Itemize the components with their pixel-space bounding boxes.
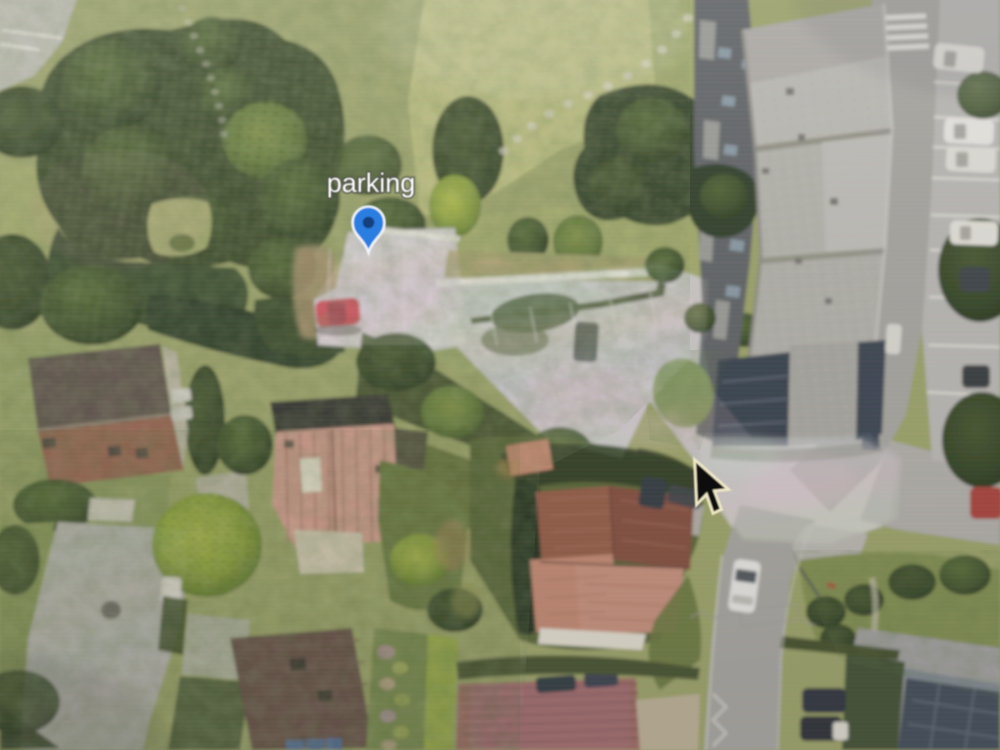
svg-text:parking: parking bbox=[327, 168, 416, 198]
